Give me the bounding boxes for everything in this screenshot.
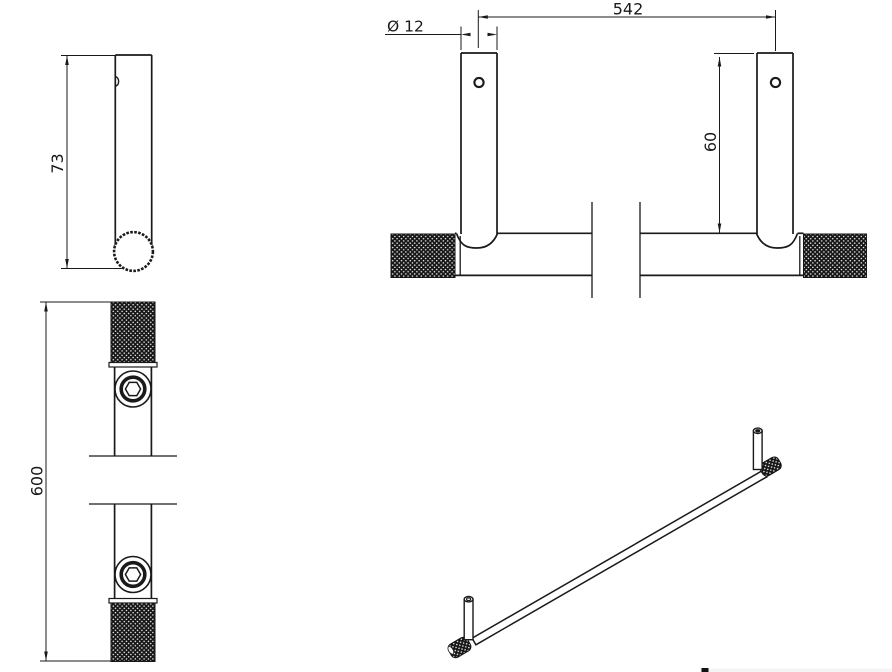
technical-drawing-canvas: 73 600: [0, 0, 892, 672]
post-right-3d: [753, 428, 762, 469]
knurled-end-top: [111, 302, 155, 363]
dimension-73: 73: [48, 56, 122, 269]
screw-hole: [771, 78, 780, 87]
arrowhead-down: [44, 652, 48, 662]
knurled-end-bottom: [111, 603, 155, 662]
arrowhead-down: [718, 224, 722, 234]
set-screw-lower: [115, 557, 151, 593]
logo-mark: [702, 668, 709, 672]
arrowhead-up: [44, 302, 48, 312]
arrowhead-left: [461, 33, 471, 37]
dimension-60: 60: [701, 54, 754, 234]
set-screw-upper: [115, 371, 151, 407]
collar-bottom: [109, 599, 157, 604]
dimension-600: 600: [28, 302, 112, 661]
arrowhead-down: [65, 259, 69, 269]
bar-plan-view: 600: [28, 302, 178, 662]
screw-hole: [474, 78, 483, 87]
post-bore: [467, 598, 471, 601]
arrowhead-right: [766, 15, 776, 19]
bar-3d: [472, 470, 767, 645]
front-view: 542 Ø 12 60: [385, 0, 867, 298]
footer-logo-fragment: [700, 668, 892, 672]
dim-label-60: 60: [701, 132, 720, 152]
dim-label-600: 600: [28, 466, 47, 497]
footer-band: [700, 669, 892, 672]
dim-label-73: 73: [48, 153, 67, 173]
arrowhead-left: [478, 15, 488, 19]
isometric-view: [446, 428, 783, 659]
dimension-542: 542: [478, 0, 775, 51]
dimension-diameter-12: Ø 12: [385, 18, 497, 51]
arrowhead-right: [488, 33, 498, 37]
hex-socket: [125, 568, 140, 581]
post-bar-fillet: [457, 234, 498, 249]
mounting-post-right: [757, 53, 798, 248]
knurled-end-left: [391, 234, 455, 278]
dim-label-542: 542: [613, 0, 644, 19]
mounting-post-left: [457, 53, 498, 248]
post-bar-fillet: [757, 234, 798, 249]
arrowhead-up: [65, 56, 69, 66]
hex-socket: [125, 382, 140, 395]
post-side-view: 73: [48, 55, 153, 271]
towel-bar-dimension-drawing: 73 600: [0, 0, 892, 672]
knurled-cap-end-view: [114, 232, 153, 271]
bar-outline: [455, 202, 804, 298]
knurled-end-right: [804, 234, 867, 278]
collar-top: [109, 363, 157, 368]
post-bore: [756, 430, 760, 432]
dim-label-diameter: Ø 12: [387, 18, 424, 36]
arrowhead-up: [718, 57, 722, 67]
post-left-3d: [464, 597, 473, 640]
